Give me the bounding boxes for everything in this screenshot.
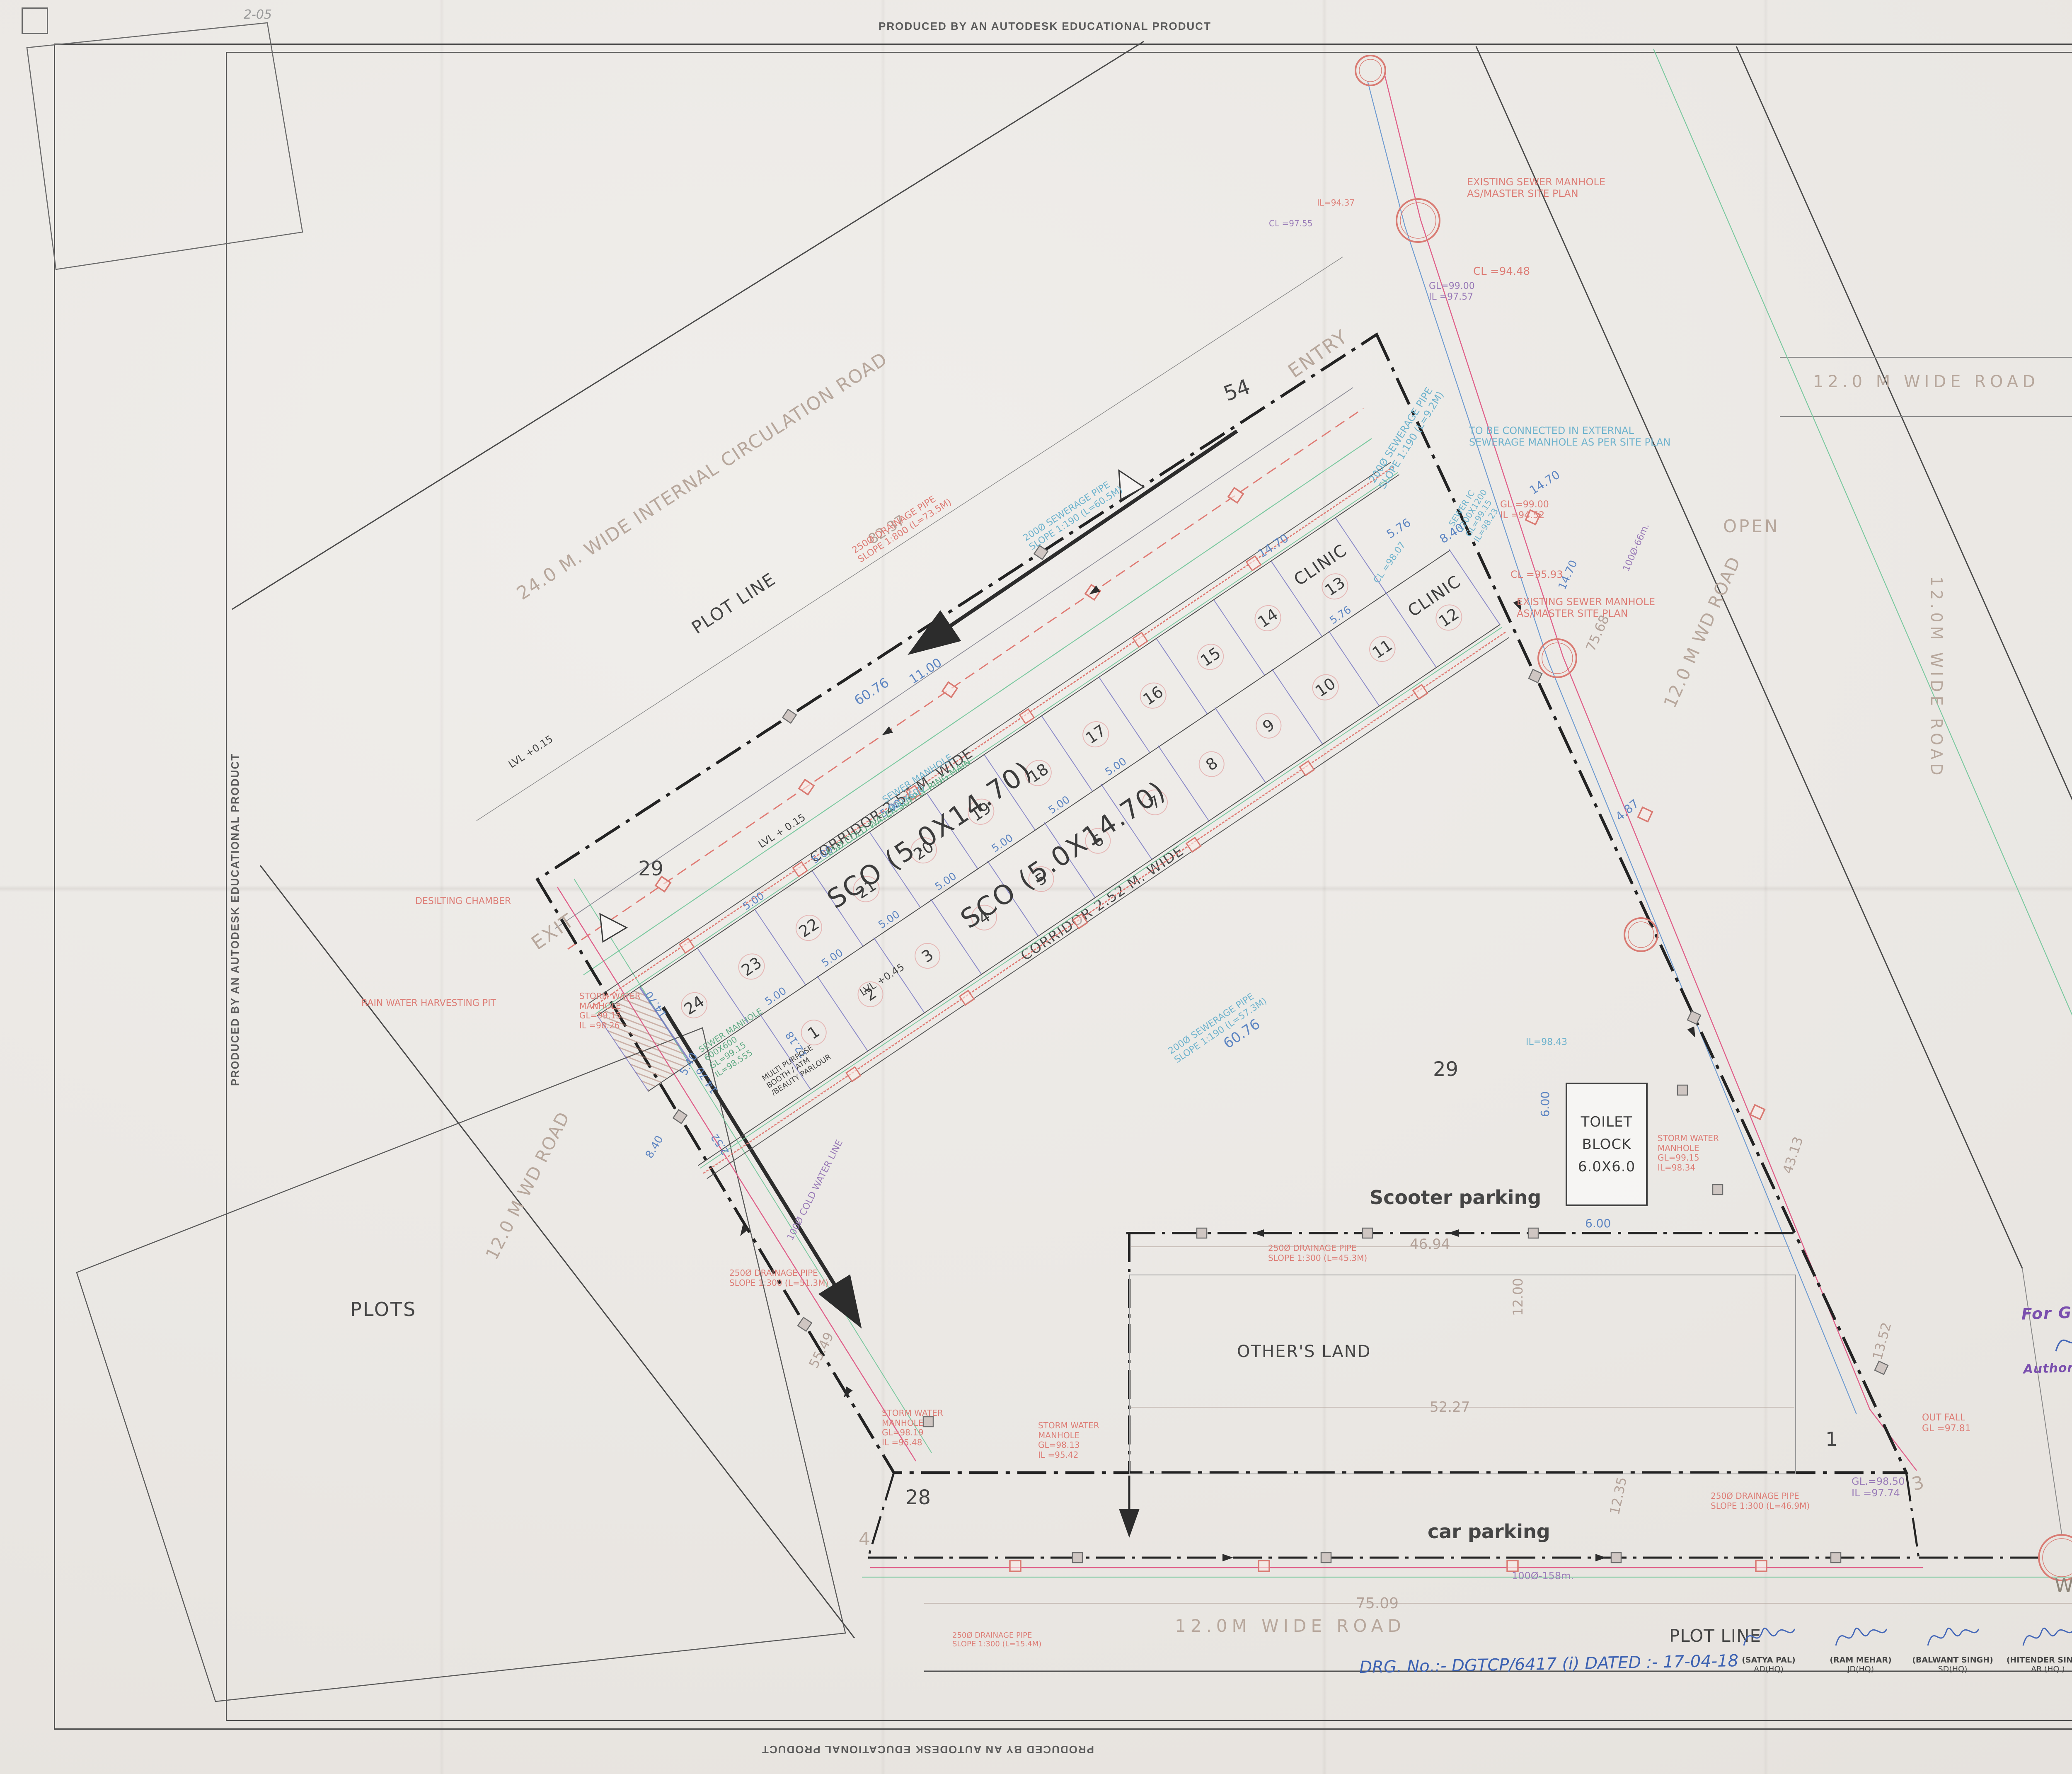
- toilet-label-1: TOILET: [1581, 1114, 1633, 1130]
- approval-role: JD(HQ): [1813, 1665, 1908, 1674]
- flow-arrow: [1687, 1026, 1699, 1039]
- plan-label: IL=98.43: [1526, 1037, 1567, 1048]
- plot-number: 10: [1307, 669, 1344, 705]
- flow-arrow: [880, 726, 893, 738]
- toilet-block: TOILET BLOCK 6.0X6.0: [1566, 1083, 1648, 1206]
- approval-scribble: [2017, 1619, 2072, 1654]
- sewer-manhole-square: [1750, 1105, 1765, 1120]
- storm-manhole-square: [782, 709, 796, 723]
- car-parking-label: car parking: [1428, 1520, 1550, 1543]
- plan-label: DESILTING CHAMBER: [415, 896, 511, 907]
- flow-arrow: [1222, 1554, 1233, 1561]
- flow-arrow: [1595, 1554, 1606, 1561]
- plots-label: PLOTS: [350, 1298, 416, 1321]
- scooter-parking-label: Scooter parking: [1370, 1186, 1541, 1209]
- drawing-sheet: PRODUCED BY AN AUTODESK EDUCATIONAL PROD…: [0, 0, 2072, 1774]
- sewer-manhole-circle: [2039, 1535, 2072, 1580]
- storm-manhole-square: [1687, 1011, 1701, 1024]
- plan-label: 6.00: [1538, 1091, 1552, 1117]
- sewer-manhole-square: [1010, 1561, 1021, 1571]
- open-label: OPEN: [1723, 516, 1779, 537]
- geo-stamp: For GEO Connect Ltd. Authorised Signator…: [2021, 1298, 2072, 1377]
- sewer-manhole-circle-inner: [1359, 59, 1382, 82]
- plan-label: CL =95.93: [1510, 569, 1563, 580]
- plot-number: 14: [1250, 600, 1286, 636]
- storm-manhole-square: [798, 1317, 811, 1331]
- storm-manhole-square: [1713, 1185, 1723, 1195]
- plot-29-center: 29: [1433, 1058, 1458, 1081]
- plan-label: 46.94: [1410, 1236, 1450, 1253]
- parcel-top-left: [27, 23, 303, 269]
- sewer-manhole-circle: [1356, 56, 1385, 85]
- plan-label: CL =94.48: [1473, 265, 1530, 278]
- plot-number: 24: [676, 987, 712, 1023]
- approval-name: (RAM MEHAR): [1813, 1655, 1908, 1665]
- plan-label: GL.=98.50 IL =97.74: [1852, 1476, 1905, 1499]
- plot-number: 15: [1192, 639, 1229, 675]
- plan-label: GL =99.00 IL =94.52: [1500, 499, 1549, 521]
- plan-label: 6.00: [1585, 1217, 1611, 1230]
- plan-label: STORM WATER MANHOLE GL=99.15 IL =98.26: [579, 991, 641, 1030]
- plan-label: OUT FALL GL =97.81: [1922, 1413, 1971, 1434]
- sewer-manhole-square: [799, 780, 814, 795]
- plan-label: 52.27: [1430, 1399, 1470, 1415]
- stamp-signature: [2047, 1318, 2072, 1360]
- sewer-manhole-square: [942, 682, 957, 697]
- note-external-sewerage: TO BE CONNECTED IN EXTERNAL SEWERAGE MAN…: [1469, 425, 1670, 448]
- sewer-manhole-circle-inner: [1628, 922, 1654, 948]
- plot-number: 3: [910, 938, 945, 974]
- plot-number: 17: [1077, 716, 1114, 752]
- sewer-manhole-square: [1228, 488, 1243, 503]
- plan-label: 75.09: [1356, 1595, 1399, 1612]
- plan-label: 250Ø DRAINAGE PIPE SLOPE 1:300 (L=46.9M): [1711, 1491, 1810, 1511]
- road-edge-24m: [232, 41, 1144, 609]
- plan-label: 250Ø DRAINAGE PIPE SLOPE 1:300 (L=15.4M): [952, 1631, 1041, 1648]
- note-existing-sewer-manhole-top: EXISTING SEWER MANHOLE AS/MASTER SITE PL…: [1467, 176, 1605, 200]
- storm-manhole-square: [1363, 1228, 1372, 1238]
- note-existing-sewer-manhole-right: EXISTING SEWER MANHOLE AS/MASTER SITE PL…: [1517, 596, 1655, 620]
- plot-4: 4: [859, 1529, 870, 1550]
- plan-label: 100Ø-158m.: [1512, 1570, 1574, 1582]
- storm-manhole-square: [1529, 669, 1542, 683]
- storm-manhole-square: [1831, 1553, 1841, 1563]
- compass-w: W: [2055, 1574, 2072, 1597]
- plan-label: CL =97.55: [1269, 219, 1312, 229]
- toilet-label-3: 6.0X6.0: [1578, 1158, 1635, 1175]
- plan-label: 250Ø DRAINAGE PIPE SLOPE 1:300 (L=45.3M): [1268, 1243, 1367, 1263]
- plan-label: 250Ø DRAINAGE PIPE SLOPE 1:300 (L=51.3M): [729, 1268, 828, 1288]
- plot-1-bottom: 1: [1825, 1428, 1837, 1450]
- approval-signatory: (BALWANT SINGH) SD(HQ): [1905, 1619, 2000, 1674]
- approval-signatory: (SATYA PAL) AD(HQ): [1721, 1619, 1816, 1674]
- approval-role: SD(HQ): [1905, 1665, 2000, 1674]
- approval-name: (SATYA PAL): [1721, 1655, 1816, 1665]
- sewer-manhole-square: [1756, 1561, 1767, 1571]
- approval-name: (BALWANT SINGH): [1905, 1655, 2000, 1665]
- storm-manhole-square: [1677, 1085, 1687, 1095]
- plot-29-left: 29: [638, 857, 663, 881]
- sewer-manhole-square: [1638, 807, 1653, 822]
- sewer-manhole-circle-inner: [2043, 1539, 2072, 1577]
- others-land-label: OTHER'S LAND: [1237, 1342, 1371, 1362]
- toilet-label-2: BLOCK: [1582, 1136, 1631, 1153]
- road-label-bottom: 12.0M WIDE ROAD: [1175, 1616, 1406, 1636]
- plot-number: 22: [791, 910, 827, 946]
- plot-28: 28: [905, 1486, 931, 1510]
- road-label-top-right: 12.0 M WIDE ROAD: [1813, 372, 2039, 392]
- road-label-right-vertical: 12.0M WIDE ROAD: [1927, 576, 1946, 779]
- storm-manhole-square: [1072, 1553, 1082, 1563]
- approval-role: AD(HQ): [1721, 1665, 1816, 1674]
- plot-number: 11: [1364, 631, 1401, 667]
- sewer-manhole-circle: [1538, 639, 1576, 677]
- sewer-manhole-circle-inner: [1542, 643, 1573, 674]
- plan-label: IL=94.37: [1317, 198, 1355, 208]
- storm-manhole-square: [1321, 1553, 1331, 1563]
- storm-manhole-square: [1528, 1228, 1538, 1238]
- pencil-mark: 2-05: [244, 7, 272, 22]
- plan-label: STORM WATER MANHOLE GL=98.19 IL =95.48: [882, 1408, 943, 1447]
- approval-signatory: (RAM MEHAR) JD(HQ): [1813, 1619, 1908, 1674]
- plan-label: RAIN WATER HARVESTING PIT: [361, 998, 496, 1009]
- storm-manhole-square: [1875, 1361, 1888, 1374]
- approval-scribble: [1830, 1619, 1892, 1654]
- sewer-manhole-square: [1259, 1561, 1269, 1571]
- flow-arrow: [1253, 1229, 1264, 1237]
- road-edge-right-2: [1736, 46, 2072, 1061]
- approval-scribble: [1738, 1619, 1800, 1654]
- plan-label: 12.00: [1510, 1278, 1526, 1316]
- approval-scribble: [1922, 1619, 1984, 1654]
- plot-number: 9: [1251, 708, 1286, 744]
- plot-number: 8: [1194, 746, 1230, 782]
- others-land-area: [1129, 1275, 1796, 1474]
- plan-label: STORM WATER MANHOLE GL=99.15 IL=98.34: [1658, 1134, 1719, 1173]
- plan-label: STORM WATER MANHOLE GL=98.13 IL =95.42: [1038, 1421, 1099, 1460]
- approval-name: (HITENDER SINGH): [2000, 1655, 2072, 1665]
- sewer-manhole-circle: [1624, 918, 1658, 951]
- storm-manhole-square: [1197, 1228, 1207, 1238]
- approval-signatory: (HITENDER SINGH) AR.(HQ.): [2000, 1619, 2072, 1674]
- plot-number: 16: [1135, 678, 1172, 714]
- plot-number: 23: [733, 948, 770, 984]
- plan-label: GL=99.00 IL =97.57: [1429, 281, 1475, 303]
- storm-manhole-square: [1611, 1553, 1621, 1563]
- approval-role: AR.(HQ.): [2000, 1665, 2072, 1674]
